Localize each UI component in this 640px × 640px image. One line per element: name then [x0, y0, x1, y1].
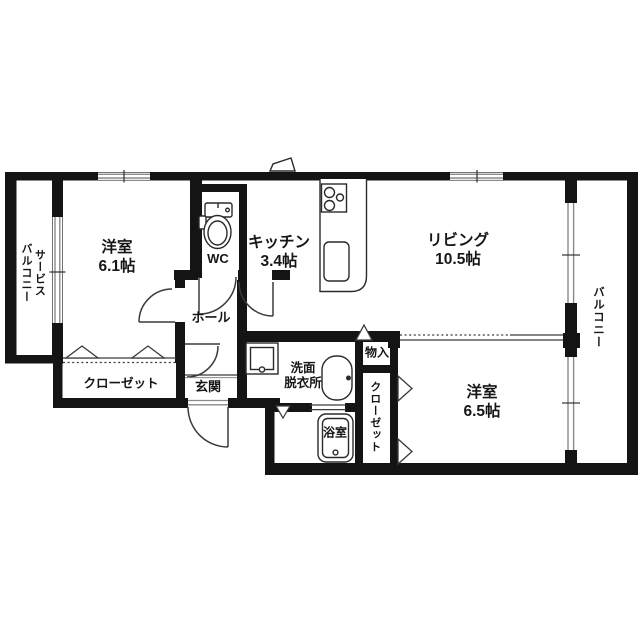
label-storage: 物入	[365, 346, 389, 361]
label-closet1: クローゼット	[83, 376, 158, 391]
storage-label: 物入	[365, 346, 389, 360]
label-service-balcony: サービスバルコニー	[19, 243, 46, 303]
wc-label: WC	[207, 251, 229, 266]
kitchen-size: 3.4帖	[260, 253, 297, 270]
wall-closet2-right	[390, 333, 398, 463]
label-living: リビング10.5帖	[427, 232, 489, 270]
wash-basin-icon	[322, 356, 352, 400]
label-closet2: クローゼット	[367, 381, 380, 453]
wall-bottom-left	[53, 398, 188, 408]
wall-wc-top	[190, 184, 247, 192]
closet2-fold-door	[398, 376, 412, 401]
service-balcony-line2: バルコニー	[20, 243, 32, 303]
wall-bedroom2-balcony-lower	[565, 450, 577, 463]
label-entrance: 玄関	[195, 379, 221, 395]
wall-bathroom-top-right	[345, 403, 363, 412]
window-living-balcony	[566, 203, 577, 303]
wall-partition-stub-right	[563, 333, 580, 348]
kitchen-counter-icon	[320, 179, 367, 292]
window-bedroom1-left	[53, 217, 63, 323]
wall-hall-top-left	[174, 270, 198, 280]
floorplan-canvas: サービスバルコニー 洋室6.1帖 WC キッチン3.4帖 リビング10.5帖 バ…	[0, 0, 640, 640]
wall-storage-left	[355, 342, 363, 463]
kitchen-name: キッチン	[248, 234, 310, 251]
closet2-label: クローゼット	[369, 381, 381, 453]
bedroom1-name: 洋室	[101, 239, 132, 256]
washroom-line1: 洗面	[290, 361, 315, 375]
wall-living-balcony-upper	[565, 180, 577, 203]
closet1-label: クローゼット	[83, 376, 158, 390]
bedroom2-name: 洋室	[466, 384, 497, 401]
wall-bottom-outer	[265, 463, 638, 475]
floorplan-drawing	[0, 0, 640, 640]
closet2-fold-door	[398, 439, 412, 464]
wall-bedroom1-hall-lower	[175, 322, 185, 363]
label-hall: ホール	[191, 310, 230, 326]
wall-service-balcony-bottom	[5, 355, 63, 364]
label-kitchen: キッチン3.4帖	[248, 234, 310, 272]
service-balcony-line1: サービス	[33, 249, 45, 297]
label-bathroom: 浴室	[323, 426, 347, 441]
label-washroom: 洗面脱衣所	[284, 361, 322, 392]
bedroom2-size: 6.5帖	[463, 403, 500, 420]
bedroom1-size: 6.1帖	[98, 258, 135, 275]
washroom-line2: 脱衣所	[284, 376, 322, 390]
wall-living-balcony-lower	[565, 303, 577, 333]
hall-label: ホール	[191, 310, 230, 325]
living-size: 10.5帖	[435, 251, 481, 268]
wall-washroom-top	[237, 331, 400, 342]
living-name: リビング	[427, 232, 489, 249]
toilet-icon	[199, 203, 232, 249]
door-arc-entrance	[188, 407, 228, 447]
washing-machine-icon	[246, 343, 278, 374]
door-arc-wc	[199, 277, 236, 314]
balcony-label: バルコニー	[592, 286, 604, 349]
door-arc-hall-entrance	[187, 346, 218, 377]
label-bedroom1: 洋室6.1帖	[98, 239, 135, 277]
label-balcony: バルコニー	[591, 286, 605, 349]
closet1-fold-door	[132, 346, 164, 358]
wall-left-outer	[5, 172, 17, 363]
wall-wc-kitchen	[239, 184, 247, 270]
bathroom-label: 浴室	[323, 426, 347, 440]
label-wc: WC	[207, 251, 229, 267]
kitchen-sink-icon	[324, 242, 349, 281]
door-arc-bedroom1	[139, 289, 172, 322]
wall-bedroom2-balcony-upper	[565, 348, 577, 357]
closet1-fold-door	[66, 346, 98, 358]
vent-flap-icon	[270, 158, 295, 171]
wall-hall-top-mid	[238, 270, 247, 280]
partition-living-bedroom2	[400, 335, 563, 340]
label-bedroom2: 洋室6.5帖	[463, 384, 500, 422]
entrance-label: 玄関	[195, 379, 221, 394]
wall-right-outer	[627, 172, 638, 475]
